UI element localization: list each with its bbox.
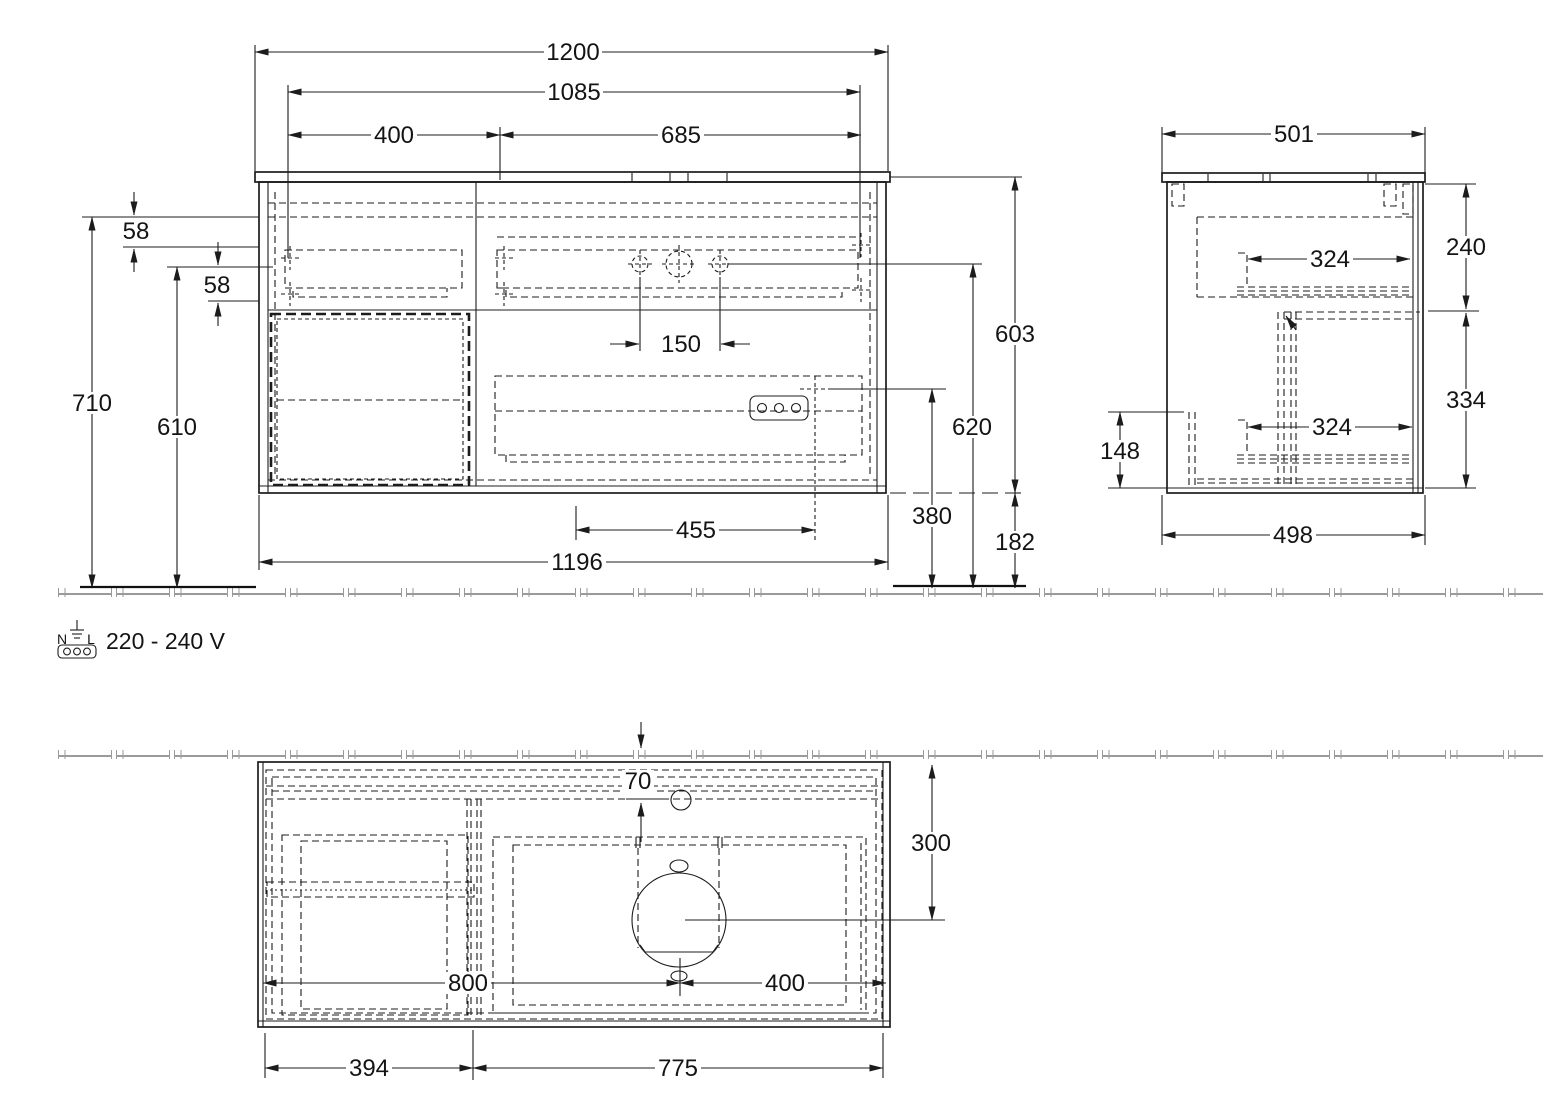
wall-bracket — [1384, 184, 1396, 206]
dim-label-300: 300 — [911, 830, 951, 857]
dim-basin-position: 800 400 — [263, 958, 886, 997]
dim-right-column: 603 182 620 380 — [890, 177, 1038, 588]
ground-icon — [70, 620, 84, 638]
faucet-hole-plan-icon — [671, 790, 691, 810]
voltage-label: 220 - 240 V — [106, 628, 226, 654]
front-view: 150 1200 — [69, 39, 1038, 588]
countertop-side — [1162, 173, 1425, 182]
dim-label-1196: 1196 — [551, 549, 603, 576]
wall-hatch — [55, 750, 1543, 759]
dim-trap-offset: 455 — [576, 452, 815, 544]
dim-label-710: 710 — [72, 390, 112, 417]
fitting-markers — [281, 233, 870, 306]
left-door — [271, 314, 469, 485]
dim-label-394: 394 — [349, 1055, 389, 1082]
plan-view: 70 — [258, 722, 954, 1082]
wall-bracket — [1403, 184, 1413, 214]
vanity-technical-drawing: 150 1200 — [0, 0, 1558, 1119]
dim-top-zone: 240 — [1425, 184, 1489, 311]
dim-total-height: 710 — [69, 217, 115, 588]
dim-label-400-plan: 400 — [765, 970, 805, 997]
dim-label-685: 685 — [661, 122, 701, 149]
lower-right-drawer — [495, 376, 862, 462]
dim-plan-sections: 394 775 — [265, 1030, 883, 1082]
side-view: 501 324 — [1097, 121, 1489, 549]
upper-right-drawer — [497, 250, 858, 297]
power-socket-icon — [750, 396, 808, 420]
dim-top-drawer-depth: 324 — [1248, 246, 1410, 273]
dim-label-150: 150 — [661, 331, 701, 358]
dim-faucet-spacing: 150 — [610, 277, 750, 358]
dim-bottom-zone: 334 — [1425, 313, 1489, 488]
dim-inner-width: 1085 — [288, 79, 860, 258]
dim-label-603: 603 — [995, 321, 1035, 348]
dim-recess: 148 — [1097, 412, 1195, 488]
dim-label-1085: 1085 — [547, 79, 600, 106]
dim-label-240: 240 — [1446, 234, 1486, 261]
dim-label-1200: 1200 — [546, 39, 599, 66]
side-bottom-drawer — [1197, 312, 1420, 487]
dim-label-380: 380 — [912, 503, 952, 530]
power-symbol: N L 220 - 240 V — [57, 620, 226, 658]
floor-hatch — [55, 586, 1543, 597]
dim-label-501: 501 — [1274, 121, 1314, 148]
dim-label-334: 334 — [1446, 387, 1486, 414]
dim-label-400: 400 — [374, 122, 414, 149]
dim-label-620: 620 — [952, 414, 992, 441]
dim-label-58-mid: 58 — [204, 272, 231, 299]
cabinet-body-front — [259, 182, 886, 493]
dim-label-324-bottom: 324 — [1312, 414, 1352, 441]
dim-label-324-top: 324 — [1310, 246, 1350, 273]
overflow-hole-icon — [670, 860, 688, 872]
faucet-holes-icon — [628, 245, 732, 283]
plan-left-drawer — [267, 835, 474, 1015]
dim-label-148: 148 — [1100, 438, 1140, 465]
drain-hole-icon — [671, 971, 687, 981]
dim-label-775: 775 — [658, 1055, 698, 1082]
dim-label-182: 182 — [995, 529, 1035, 556]
dim-label-800: 800 — [448, 970, 488, 997]
dim-label-58-top: 58 — [123, 218, 150, 245]
dim-inner-height: 610 — [154, 267, 200, 588]
dim-label-455: 455 — [676, 517, 716, 544]
side-top-drawer — [1197, 217, 1413, 297]
upper-left-drawer — [285, 250, 462, 297]
dim-label-70: 70 — [625, 768, 652, 795]
dim-label-498: 498 — [1273, 522, 1313, 549]
dim-body-width: 1196 — [259, 495, 888, 576]
dim-label-610: 610 — [157, 414, 197, 441]
dim-faucet-offset: 70 — [622, 722, 668, 842]
technical-drawing-page: 150 1200 — [0, 0, 1558, 1119]
dim-body-depth: 498 — [1162, 495, 1425, 549]
wall-bracket — [1172, 184, 1184, 206]
countertop-front — [255, 172, 890, 182]
dim-total-depth: 501 — [1162, 121, 1425, 176]
dim-basin-depth: 300 — [908, 765, 954, 920]
cabinet-body-side — [1167, 182, 1423, 493]
dim-bottom-drawer-depth: 324 — [1248, 414, 1412, 441]
